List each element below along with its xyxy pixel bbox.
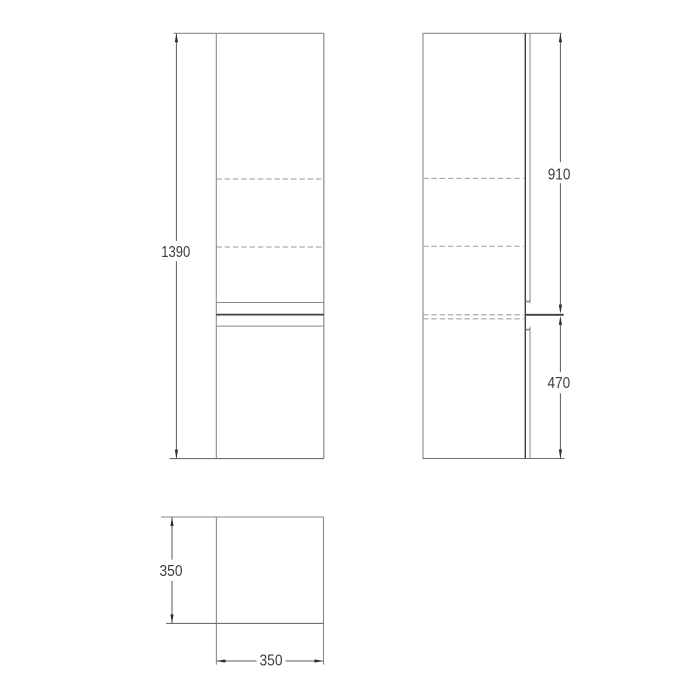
svg-text:1390: 1390 xyxy=(161,244,190,261)
svg-text:350: 350 xyxy=(160,563,183,580)
svg-text:470: 470 xyxy=(548,375,571,392)
svg-text:350: 350 xyxy=(260,652,283,669)
svg-text:910: 910 xyxy=(548,166,571,183)
